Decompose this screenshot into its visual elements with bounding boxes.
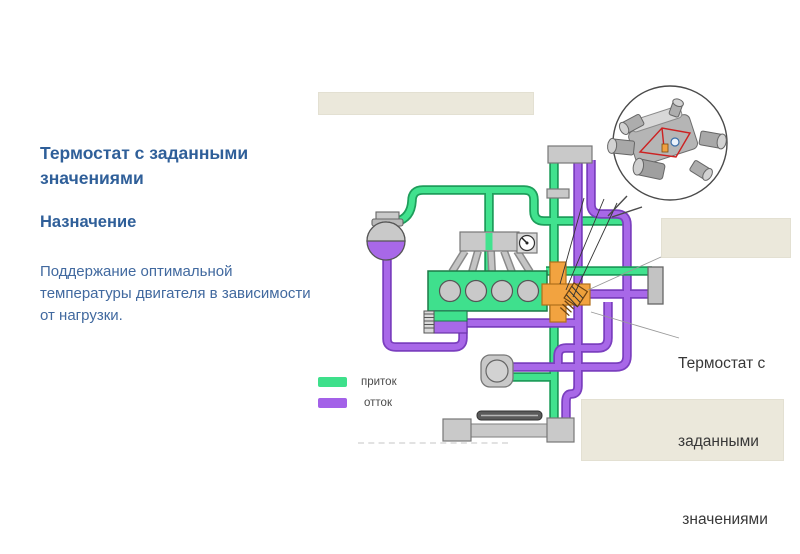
heater-core bbox=[477, 411, 542, 420]
body-line2: температуры двигателя в зависимости bbox=[40, 283, 311, 305]
outflow-color-swatch bbox=[318, 398, 347, 408]
cylinder bbox=[466, 281, 487, 302]
slide-title: Термостат с заданными значениями bbox=[40, 141, 248, 191]
manifold-coolant-stripe bbox=[486, 233, 493, 250]
body-line3: от нагрузки. bbox=[40, 305, 311, 327]
engine-block bbox=[428, 271, 547, 311]
coolant-pump bbox=[481, 355, 513, 387]
faded-text-remnant bbox=[358, 442, 508, 444]
slide: Термостат с заданными значениями Назначе… bbox=[0, 0, 800, 554]
section-heading: Назначение bbox=[40, 213, 136, 232]
temperature-gauge bbox=[517, 233, 537, 253]
legend-item-inflow: приток bbox=[318, 376, 397, 388]
body-line1: Поддержание оптимальной bbox=[40, 261, 311, 283]
under-engine-outlet bbox=[434, 311, 467, 333]
oil-filter bbox=[424, 311, 434, 333]
callout-label-line1: Термостат с bbox=[678, 351, 768, 377]
callout-label-line2: заданными bbox=[678, 429, 768, 455]
header-tank bbox=[548, 146, 592, 163]
body-paragraph: Поддержание оптимальной температуры двиг… bbox=[40, 261, 311, 327]
cylinder bbox=[440, 281, 461, 302]
bottom-hose-assembly bbox=[443, 418, 574, 442]
legend-item-outflow: отток bbox=[318, 397, 392, 409]
hose-clamp bbox=[547, 189, 569, 198]
radiator bbox=[648, 267, 663, 304]
thermostat-callout-label: Термостат с заданными значениями bbox=[678, 299, 768, 554]
valve-detail bbox=[671, 138, 679, 146]
cylinder bbox=[492, 281, 513, 302]
inflow-label: приток bbox=[361, 376, 397, 388]
pipe-stub bbox=[607, 138, 635, 156]
outflow-label: отток bbox=[364, 397, 392, 409]
callout-label-line3: значениями bbox=[678, 507, 768, 533]
inflow-color-swatch bbox=[318, 377, 347, 387]
thermostat-detail-callout bbox=[607, 86, 728, 217]
expansion-tank bbox=[367, 212, 405, 260]
cylinder bbox=[518, 281, 539, 302]
slide-title-line1: Термостат с заданными bbox=[40, 141, 248, 166]
slide-title-line2: значениями bbox=[40, 166, 248, 191]
wax-element bbox=[662, 144, 668, 152]
